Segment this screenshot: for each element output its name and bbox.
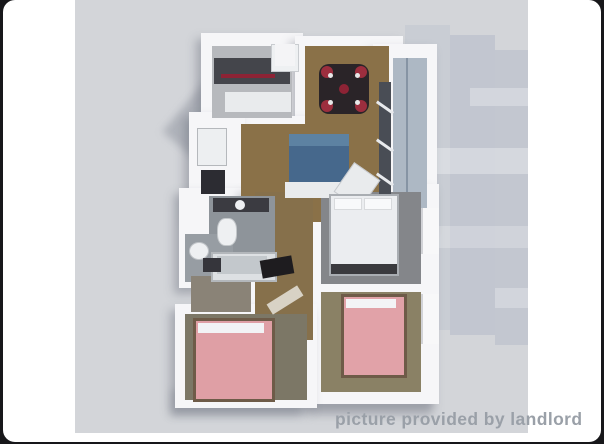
balcony-floor [393, 58, 427, 210]
listing-image-card: picture provided by landlord [3, 0, 601, 442]
pantry-box [275, 44, 295, 66]
watermark-caption: picture provided by landlord [335, 409, 582, 430]
kitchen-backsplash-red [221, 74, 275, 78]
bedroom2-window-leaf [421, 294, 439, 344]
toilet [217, 218, 237, 246]
balcony-rail-line [406, 58, 408, 210]
half-bath-fixture [203, 258, 221, 272]
floorplan-photo [75, 0, 528, 433]
bed-pillow [334, 198, 362, 210]
dining-table-center [339, 84, 349, 94]
kitchen-island [225, 92, 291, 112]
bedroom3-bed [193, 318, 275, 402]
bedroom1-window-leaf [421, 208, 439, 254]
bedroom1-bed [329, 194, 399, 276]
floorplan-model [75, 0, 528, 433]
fridge [197, 128, 227, 166]
bedroom2-bed [341, 294, 407, 378]
dining-table-set [319, 64, 369, 114]
bathroom-vanity [213, 198, 269, 212]
utility-dark-unit [201, 170, 225, 194]
bed-pillow [346, 299, 396, 308]
sink-bowl [235, 200, 245, 210]
bed-pillow [198, 323, 264, 333]
bed-pillow [364, 198, 392, 210]
balcony-window-panels [379, 82, 391, 198]
bed-footboard [331, 264, 397, 274]
